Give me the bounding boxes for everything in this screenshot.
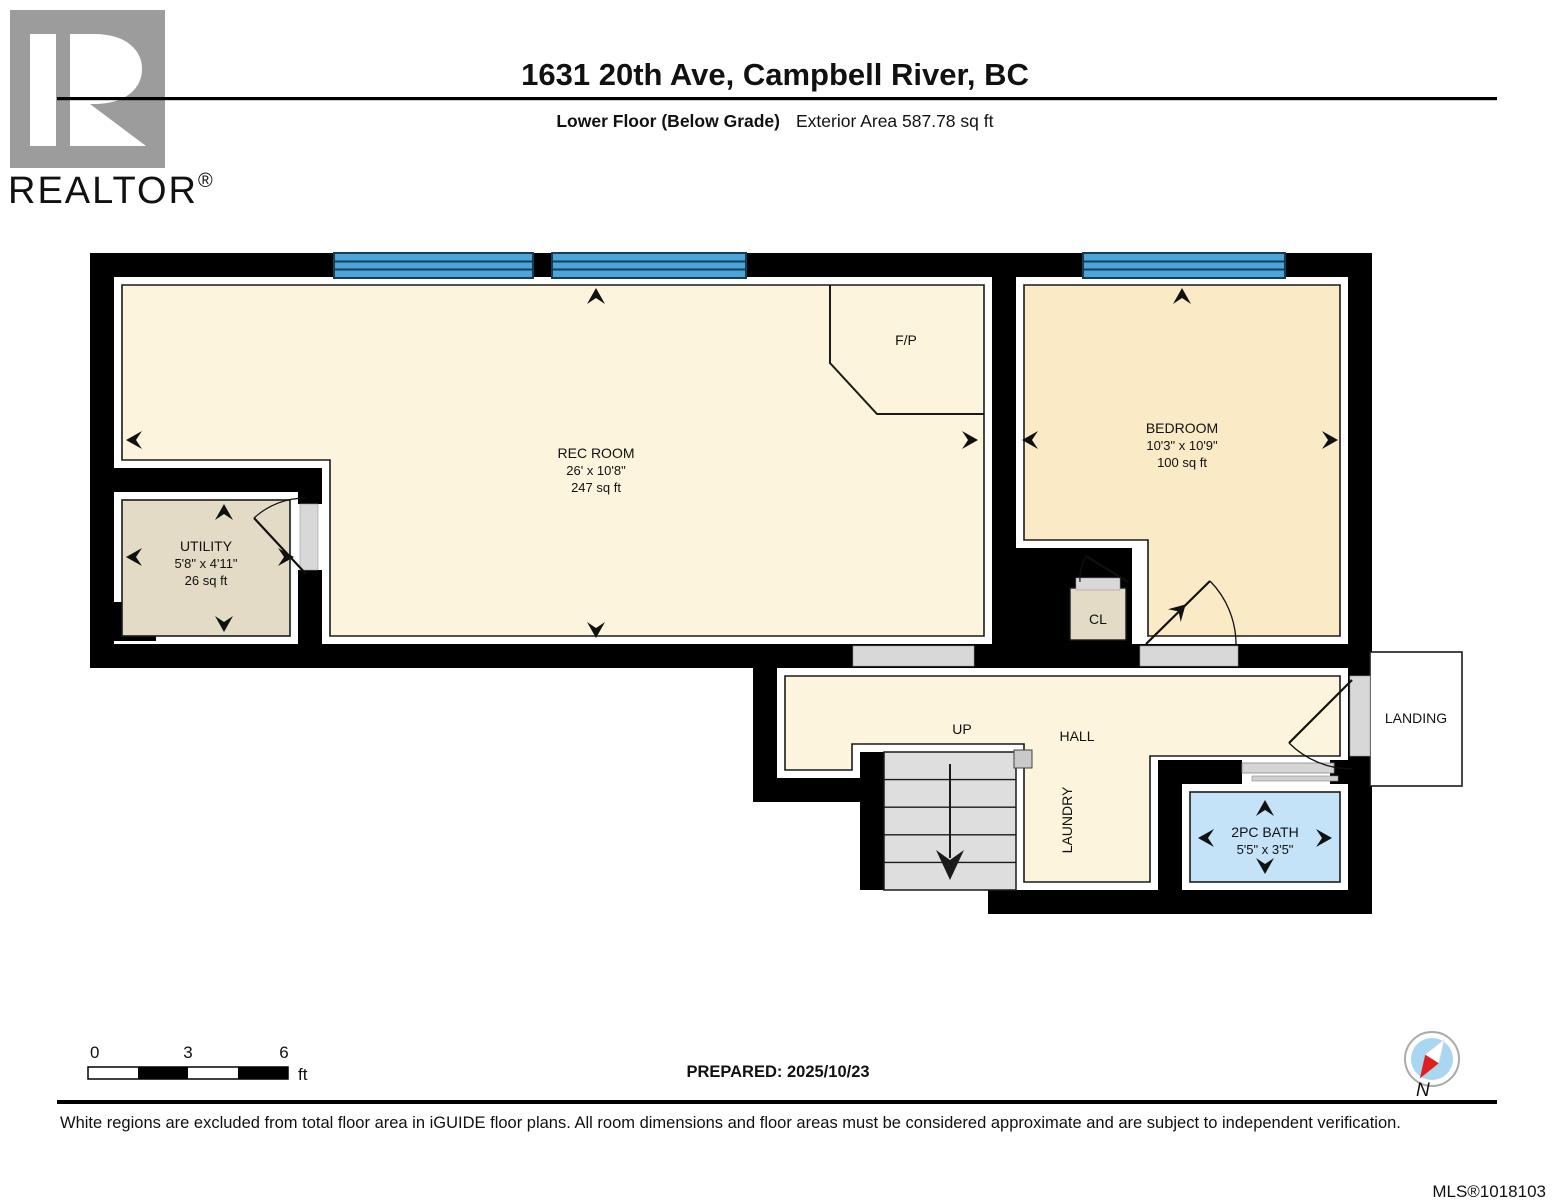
closet-door-threshold: [1076, 578, 1120, 590]
rec-hall-opening: [853, 646, 974, 666]
rec-bedroom-wall: [992, 277, 1016, 644]
realtor-logo: [10, 10, 165, 168]
bedroom-area: 100 sq ft: [1157, 455, 1207, 470]
window-icon: [334, 253, 533, 278]
utility-dims: 5'8" x 4'11": [174, 556, 237, 571]
utility-area: 26 sq ft: [185, 573, 228, 588]
scale-tick-6: 6: [279, 1043, 288, 1062]
mls-number: MLS®1018103: [1432, 1182, 1546, 1200]
floorplan-canvas: REALTOR® 1631 20th Ave, Campbell River, …: [0, 0, 1553, 1200]
disclaimer-text: White regions are excluded from total fl…: [60, 1114, 1401, 1132]
stairs: [884, 750, 1032, 890]
rec-room-label: REC ROOM: [558, 445, 635, 461]
utility-top-wall: [90, 468, 322, 492]
hall-label: HALL: [1059, 728, 1094, 744]
fireplace-label: F/P: [895, 332, 917, 348]
landing-label: LANDING: [1385, 710, 1447, 726]
scale-unit: ft: [298, 1065, 308, 1084]
bedroom-door-threshold: [1140, 646, 1238, 666]
window-icon: [1083, 253, 1285, 278]
realtor-wordmark: REALTOR®: [8, 170, 215, 212]
title-divider: [57, 97, 1497, 100]
rec-room-dims: 26' x 10'8": [566, 463, 626, 478]
bath-dims: 5'5" x 3'5": [1237, 842, 1294, 857]
page-title: 1631 20th Ave, Campbell River, BC: [521, 57, 1029, 92]
laundry-label: LAUNDRY: [1059, 786, 1075, 853]
up-label: UP: [952, 721, 971, 737]
closet-label: CL: [1089, 611, 1107, 627]
bath-left-wall: [1158, 760, 1182, 914]
floor-label: Lower Floor (Below Grade): [556, 111, 780, 131]
stairwell-wall: [860, 752, 884, 890]
utility-door-threshold: [300, 504, 318, 570]
bath-label: 2PC BATH: [1231, 824, 1298, 840]
exterior-area-label: Exterior Area 587.78 sq ft: [796, 111, 994, 131]
scale-tick-0: 0: [90, 1043, 99, 1062]
rec-room-area: 247 sq ft: [571, 480, 621, 495]
bedroom-dims: 10'3" x 10'9": [1146, 438, 1218, 453]
prepared-date: PREPARED: 2025/10/23: [686, 1063, 869, 1081]
stair-newel: [1014, 750, 1032, 768]
utility-label: UTILITY: [180, 538, 233, 554]
scale-tick-3: 3: [183, 1043, 192, 1062]
bedroom-label: BEDROOM: [1146, 420, 1218, 436]
compass-north-label: N: [1416, 1080, 1430, 1101]
footer-divider: [57, 1100, 1497, 1104]
window-icon: [552, 253, 746, 278]
bath-pocket-door: [1242, 763, 1334, 773]
landing-door-threshold: [1350, 676, 1370, 756]
